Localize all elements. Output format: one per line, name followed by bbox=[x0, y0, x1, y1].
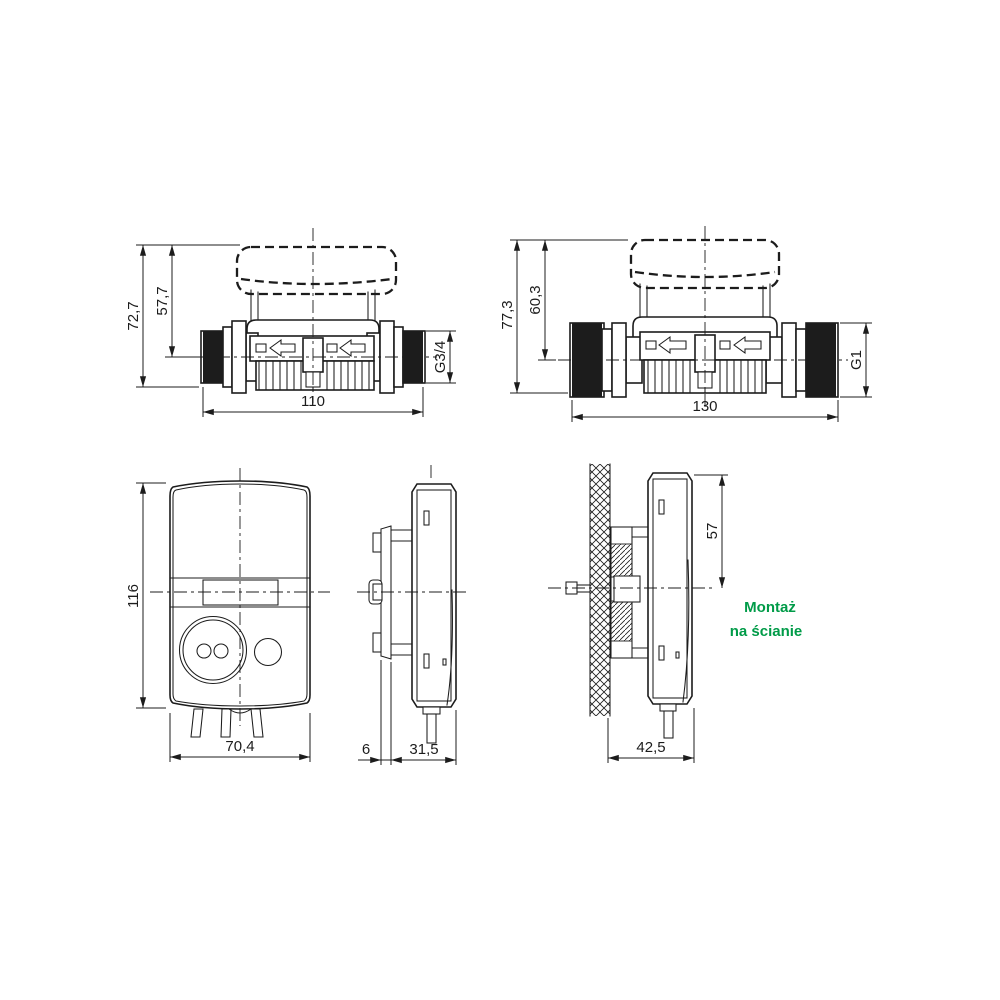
note-line-1: Montaż bbox=[744, 599, 796, 616]
display-front-view: 116 70,4 bbox=[125, 468, 330, 762]
dim-label-depth-from-wall: 42,5 bbox=[636, 739, 665, 756]
meter-dimension-drawing: 72,7 57,7 110 G3/4 bbox=[0, 0, 1000, 1000]
dim-label-depth: 31,5 bbox=[409, 741, 438, 758]
wall-bracket-section bbox=[611, 527, 648, 658]
side-slot-bottom bbox=[424, 654, 429, 668]
technical-drawing-page: 72,7 57,7 110 G3/4 bbox=[0, 0, 1000, 1000]
dim-label-width: 70,4 bbox=[225, 738, 254, 755]
dim-label-height-total: 77,3 bbox=[499, 300, 516, 329]
dim-label-thread: G3/4 bbox=[432, 341, 449, 374]
dim-label-thread: G1 bbox=[848, 350, 865, 370]
cable-glands bbox=[191, 709, 263, 737]
dim-thread-g1: G1 bbox=[840, 323, 872, 397]
display-side-view: 6 31,5 bbox=[357, 465, 470, 765]
meter-cap-dashed bbox=[237, 247, 396, 294]
dim-display-height: 116 bbox=[125, 483, 166, 708]
side-slot-top bbox=[424, 511, 429, 525]
wall-mount-note: Montaż na ścianie bbox=[730, 599, 803, 640]
dim-length-g1: 130 bbox=[572, 398, 838, 422]
note-line-2: na ścianie bbox=[730, 623, 803, 640]
meter-view-g34: 72,7 57,7 110 G3/4 bbox=[125, 228, 456, 417]
wall-mount-view: 57 42,5 Montaż na ścianie bbox=[548, 464, 802, 763]
dim-label-height-center: 60,3 bbox=[527, 285, 544, 314]
dim-height-to-center-g34: 57,7 bbox=[154, 245, 195, 357]
cable-bottom bbox=[423, 707, 440, 743]
mounting-bracket bbox=[369, 526, 412, 659]
dim-label-length: 110 bbox=[301, 393, 325, 410]
meter-view-g1: 77,3 60,3 130 G1 bbox=[499, 226, 872, 422]
dim-label-length: 130 bbox=[692, 398, 717, 415]
dim-thread-g34: G3/4 bbox=[426, 331, 456, 383]
dim-label-height-center: 57,7 bbox=[154, 286, 171, 315]
wall-section bbox=[590, 464, 610, 716]
dim-label-height-total: 72,7 bbox=[125, 301, 142, 330]
display-side-outline bbox=[412, 484, 456, 707]
dim-top-to-center: 57 bbox=[694, 475, 728, 588]
dim-label-bracket-offset: 6 bbox=[362, 741, 370, 758]
dim-depth: 31,5 bbox=[391, 741, 456, 760]
dim-height-to-center-g1: 60,3 bbox=[527, 240, 556, 360]
dim-depth-from-wall: 42,5 bbox=[608, 708, 694, 763]
dim-label-top-to-center: 57 bbox=[704, 523, 721, 540]
display-unit-mounted bbox=[648, 473, 692, 738]
dim-label-height: 116 bbox=[125, 584, 142, 608]
